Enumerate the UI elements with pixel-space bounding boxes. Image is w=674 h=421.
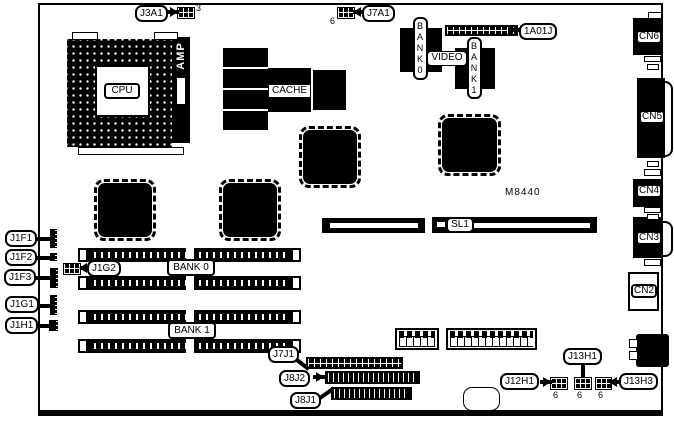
simm-cap	[292, 277, 300, 289]
callout-1a01j: 1A01J	[519, 23, 557, 40]
sl1-label: SL1	[447, 218, 473, 232]
qfp-chip	[98, 183, 152, 237]
cpu-socket-tab	[78, 147, 184, 155]
callout-j1g1: J1G1	[5, 296, 39, 313]
qfp-chip	[223, 183, 277, 237]
j12h1-arrow	[543, 377, 551, 387]
j13h3-arrow	[609, 377, 617, 387]
j7a1-arrow	[353, 7, 361, 17]
keyboard-connector-tab	[629, 339, 638, 348]
j3a1-pin-count: 3	[196, 4, 201, 13]
cn2-label: CN2	[631, 284, 657, 298]
rear-tab	[648, 12, 662, 19]
simm-slot-bank0-b	[78, 276, 301, 290]
sram-chip	[313, 70, 346, 110]
j13h1-pin-count: 6	[577, 391, 582, 400]
sl1-dash	[437, 222, 445, 227]
amp-label: AMP	[175, 36, 187, 76]
rear-tab	[647, 64, 659, 70]
callout-j12h1: J12H1	[500, 373, 539, 390]
jumper-j12h1	[550, 377, 568, 390]
edge-connector-j1f1	[50, 229, 57, 248]
callout-j13h3: J13H3	[619, 373, 658, 390]
jumper-j3a1	[177, 7, 195, 19]
video-bank1-strip: BANK1	[467, 37, 482, 99]
power-connector	[446, 328, 537, 350]
expansion-slot-stripe	[474, 223, 590, 228]
j12h1-pin-count: 6	[553, 391, 558, 400]
bank1-label: BANK 1	[168, 322, 216, 339]
simm-cap	[79, 277, 87, 289]
sram-chip	[223, 69, 268, 88]
sram-chip	[223, 48, 268, 67]
callout-j8j1: J8J1	[290, 392, 321, 409]
rear-tab	[644, 169, 661, 176]
keyboard-connector-tab	[629, 351, 638, 360]
callout-j8j2: J8J2	[279, 370, 310, 387]
rear-tab	[647, 161, 659, 167]
power-connector	[395, 328, 439, 350]
cn4-label: CN4	[636, 184, 662, 198]
1a01j-arrow	[510, 25, 518, 35]
j13h3-pin-count: 6	[598, 391, 603, 400]
video-bank0-strip: BANK0	[413, 17, 428, 80]
callout-j1f1: J1F1	[5, 230, 37, 247]
qfp-chip	[303, 130, 357, 184]
cpu-socket-tab	[72, 32, 98, 40]
callout-j1h1: J1H1	[5, 317, 38, 334]
sram-chip	[223, 90, 268, 109]
simm-cap	[292, 311, 300, 323]
simm-cap	[79, 311, 87, 323]
video-label: VIDEO	[427, 51, 467, 66]
edge-connector-j1h1	[49, 320, 58, 331]
header-j8j2	[325, 371, 420, 384]
keyboard-connector	[636, 334, 669, 367]
cpu-label: CPU	[104, 83, 140, 99]
j8j2-arrow	[316, 372, 324, 382]
j1f3-leader	[36, 276, 50, 280]
edge-connector-j1f2	[50, 253, 57, 261]
simm-cap	[79, 249, 87, 261]
callout-j13h1: J13H1	[563, 348, 602, 365]
header-j8j1	[331, 387, 412, 400]
battery-outline	[463, 387, 500, 411]
amp-slot	[177, 78, 185, 104]
jumper-j13h1	[574, 377, 592, 390]
rear-tab	[644, 56, 661, 62]
j1f1-leader	[36, 237, 50, 241]
callout-j7a1: J7A1	[362, 5, 395, 22]
j1g2-arrow	[79, 263, 87, 273]
callout-j3a1: J3A1	[135, 5, 168, 22]
model-text: M8440	[505, 187, 541, 198]
callout-j1f2: J1F2	[5, 249, 37, 266]
j7a1-pin-count: 6	[330, 17, 335, 26]
edge-connector-j1f3	[50, 268, 58, 288]
rear-tab	[644, 207, 661, 213]
bank0-label: BANK 0	[167, 259, 215, 276]
header-j7j1	[306, 357, 403, 369]
edge-connector-j1g1	[50, 295, 57, 315]
expansion-slot-stripe	[330, 223, 418, 228]
j3a1-arrow	[170, 7, 178, 17]
callout-j1g2: J1G2	[87, 260, 121, 277]
j1f2-leader	[36, 256, 50, 260]
callout-j7j1: J7J1	[268, 346, 299, 363]
cn3-label: CN3	[636, 231, 662, 245]
callout-j1f3: J1F3	[4, 269, 36, 286]
rear-tab	[647, 214, 659, 220]
qfp-chip	[442, 118, 497, 172]
simm-cap	[292, 249, 300, 261]
sram-chip	[223, 111, 268, 130]
simm-cap	[79, 340, 87, 352]
cn6-label: CN6	[636, 30, 662, 44]
rear-tab	[644, 259, 661, 266]
cn5-label: CN5	[639, 110, 665, 124]
cache-label: CACHE	[269, 85, 310, 97]
